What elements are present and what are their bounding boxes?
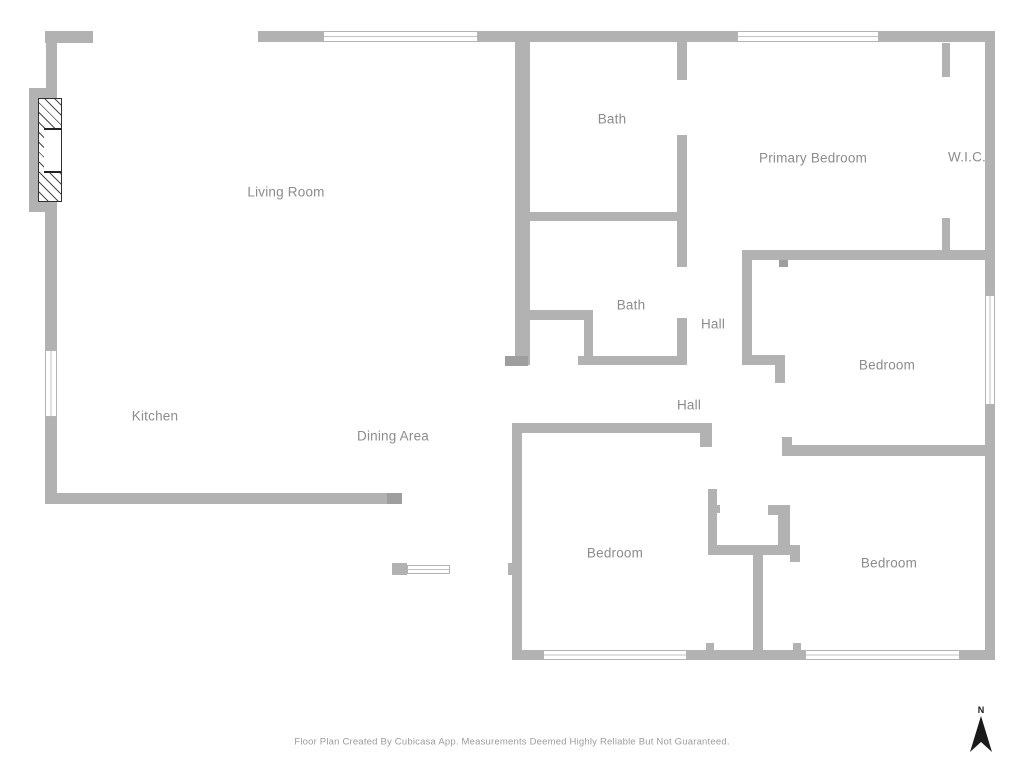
wall-segment xyxy=(46,43,57,89)
room-label-wic: W.I.C. xyxy=(948,150,986,165)
wall-segment xyxy=(782,445,986,456)
room-label-dining-area: Dining Area xyxy=(357,429,429,444)
wall-segment xyxy=(778,505,790,545)
wall-segment xyxy=(530,212,677,221)
wall-segment xyxy=(45,416,57,504)
room-label-kitchen: Kitchen xyxy=(132,409,178,424)
wall-segment xyxy=(879,31,995,42)
window-symbol xyxy=(543,650,687,660)
wall-segment xyxy=(505,356,528,366)
floor-plan: Living RoomBathPrimary BedroomW.I.C.Bath… xyxy=(0,0,1024,768)
wall-segment xyxy=(942,43,950,77)
wall-segment xyxy=(985,405,995,660)
window-symbol xyxy=(737,31,879,42)
wall-segment xyxy=(528,310,593,320)
wall-segment xyxy=(45,493,402,504)
wall-segment xyxy=(45,31,93,43)
wall-segment xyxy=(942,218,950,250)
north-arrow: N xyxy=(968,705,994,759)
north-label: N xyxy=(968,705,994,715)
wall-segment xyxy=(700,423,712,447)
wall-segment xyxy=(258,31,323,42)
wall-segment xyxy=(793,643,801,651)
wall-segment xyxy=(512,423,712,433)
wall-segment xyxy=(742,250,752,365)
wall-segment xyxy=(708,545,790,555)
room-label-bedroom-right-middle: Bedroom xyxy=(859,358,915,373)
window-symbol xyxy=(985,295,995,405)
room-label-bath-upper: Bath xyxy=(598,112,627,127)
wall-segment xyxy=(716,505,720,513)
room-label-living-room: Living Room xyxy=(247,185,324,200)
room-label-bath-lower: Bath xyxy=(617,298,646,313)
room-label-hall-lower: Hall xyxy=(677,398,701,413)
wall-segment xyxy=(687,650,805,660)
wall-segment xyxy=(478,31,737,42)
window-symbol xyxy=(323,31,478,42)
wall-segment xyxy=(677,135,687,267)
room-label-bedroom-bottom-left: Bedroom xyxy=(587,546,643,561)
wall-segment xyxy=(753,555,763,652)
wall-segment xyxy=(708,489,717,546)
wall-segment xyxy=(45,210,57,351)
wall-segment xyxy=(578,356,687,365)
wall-segment xyxy=(512,650,543,660)
window-symbol xyxy=(805,650,960,660)
wall-segment xyxy=(706,643,714,651)
room-label-hall-upper: Hall xyxy=(701,317,725,332)
wall-segment xyxy=(779,260,788,267)
fireplace-opening xyxy=(44,128,61,173)
footer-disclaimer: Floor Plan Created By Cubicasa App. Meas… xyxy=(294,737,729,748)
wall-segment xyxy=(742,355,785,365)
north-arrow-icon xyxy=(968,716,994,754)
wall-segment xyxy=(782,437,792,456)
window-symbol xyxy=(45,350,57,417)
room-label-primary-bedroom: Primary Bedroom xyxy=(759,151,867,166)
room-label-bedroom-bottom-right: Bedroom xyxy=(861,556,917,571)
wall-segment xyxy=(790,545,800,562)
wall-segment xyxy=(392,563,407,575)
wall-segment xyxy=(742,250,995,260)
wall-segment xyxy=(508,563,512,575)
wall-segment xyxy=(775,365,785,383)
wall-segment xyxy=(677,42,687,80)
wall-segment xyxy=(512,423,522,650)
wall-segment xyxy=(387,493,402,504)
wall-segment xyxy=(960,650,995,660)
window-symbol xyxy=(407,565,450,574)
